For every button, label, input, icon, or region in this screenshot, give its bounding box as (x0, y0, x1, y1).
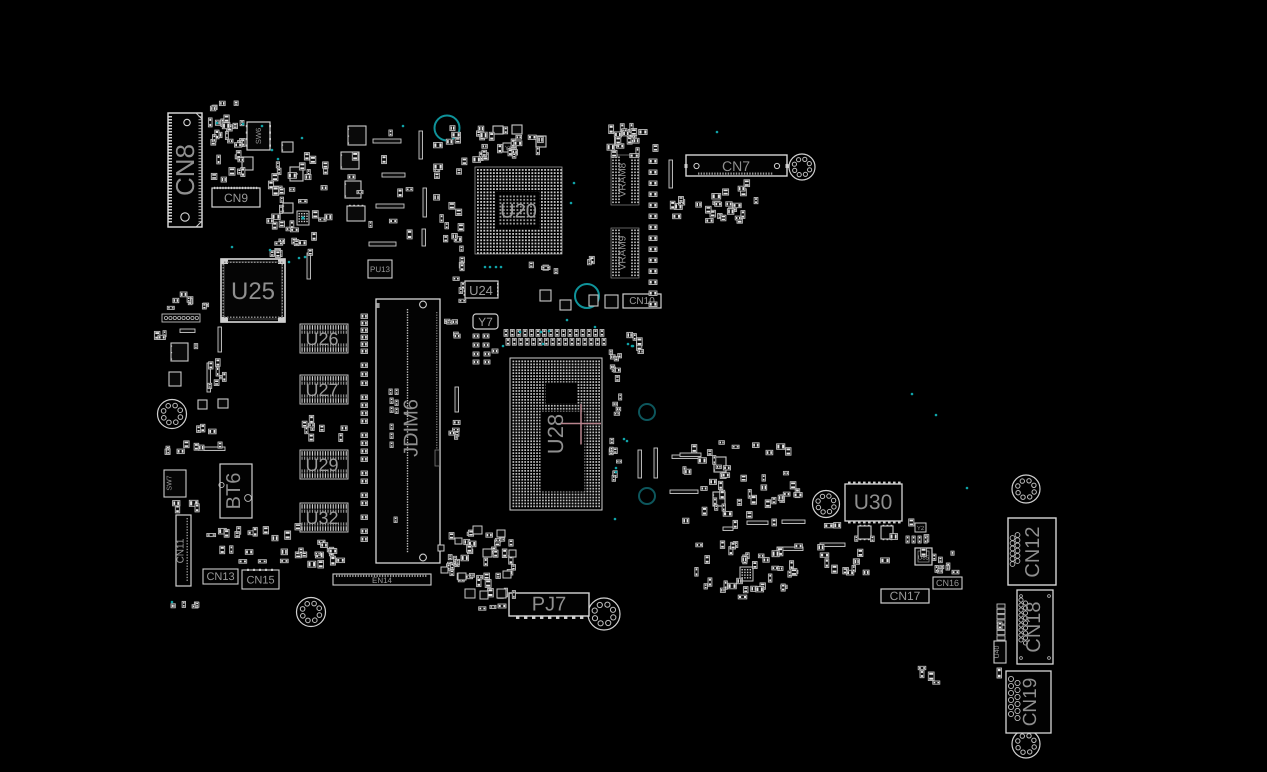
svg-text:CN17: CN17 (890, 589, 921, 603)
svg-text:CN18: CN18 (1023, 601, 1045, 652)
svg-text:U40: U40 (994, 645, 1001, 658)
svg-text:CN19: CN19 (1020, 678, 1041, 727)
svg-text:CN12: CN12 (1022, 526, 1044, 577)
svg-text:VRAM8: VRAM8 (618, 162, 629, 197)
svg-text:CN7: CN7 (722, 158, 750, 174)
svg-text:EN14: EN14 (372, 576, 393, 585)
svg-text:PJ7: PJ7 (532, 594, 566, 616)
svg-text:Y7: Y7 (478, 315, 493, 329)
svg-text:SW6: SW6 (254, 128, 263, 144)
svg-text:U30: U30 (854, 491, 893, 514)
svg-text:CN11: CN11 (176, 538, 187, 563)
svg-text:SW7: SW7 (167, 475, 174, 490)
svg-text:PU13: PU13 (370, 265, 391, 274)
svg-text:U20: U20 (500, 201, 537, 223)
svg-text:U26: U26 (305, 329, 338, 349)
svg-text:JDIM6: JDIM6 (401, 399, 423, 457)
svg-text:CN16: CN16 (936, 578, 959, 588)
svg-text:Y2: Y2 (917, 525, 925, 532)
svg-text:U24: U24 (469, 283, 493, 298)
svg-text:U29: U29 (305, 455, 338, 475)
svg-text:CN9: CN9 (224, 191, 248, 205)
svg-text:BT6: BT6 (223, 473, 245, 510)
svg-text:CN15: CN15 (246, 575, 274, 587)
svg-text:U27: U27 (305, 380, 338, 400)
svg-text:VRAM9: VRAM9 (618, 235, 629, 270)
svg-text:CN13: CN13 (206, 571, 234, 583)
svg-text:CN8: CN8 (170, 144, 200, 196)
svg-text:U32: U32 (305, 508, 338, 528)
svg-text:U25: U25 (231, 278, 275, 305)
svg-text:U28: U28 (543, 414, 568, 454)
